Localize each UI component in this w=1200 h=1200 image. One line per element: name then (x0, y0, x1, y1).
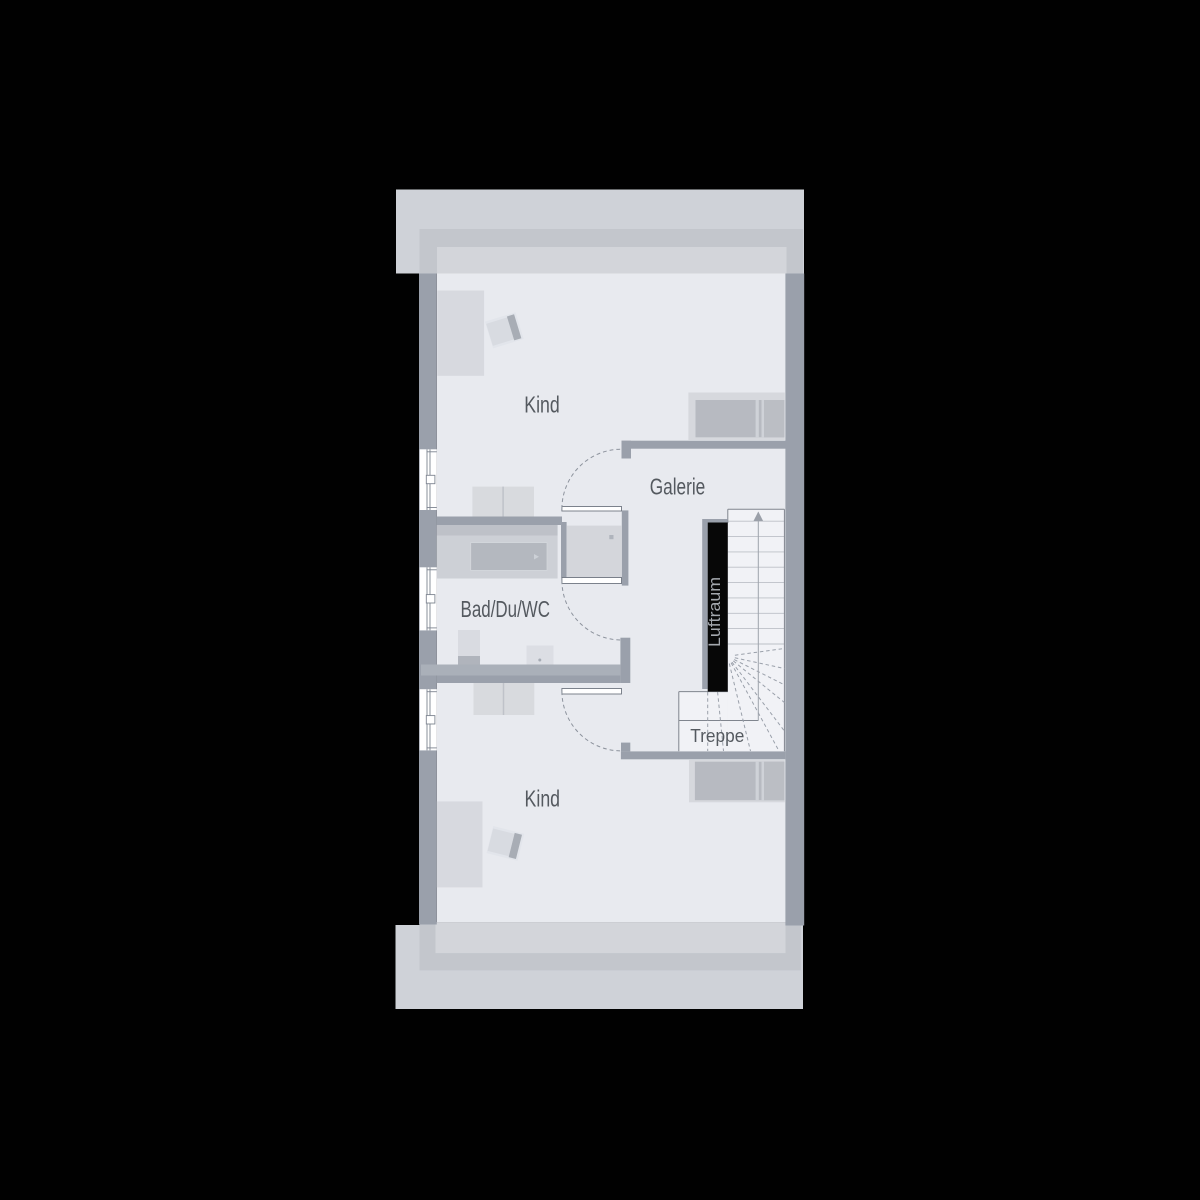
svg-text:Bad/Du/WC: Bad/Du/WC (461, 596, 551, 622)
svg-text:Treppe: Treppe (690, 725, 744, 746)
svg-text:Galerie: Galerie (650, 474, 706, 500)
svg-text:Luftraum: Luftraum (706, 577, 724, 647)
svg-text:Kind: Kind (525, 786, 561, 812)
svg-text:Kind: Kind (524, 392, 560, 418)
